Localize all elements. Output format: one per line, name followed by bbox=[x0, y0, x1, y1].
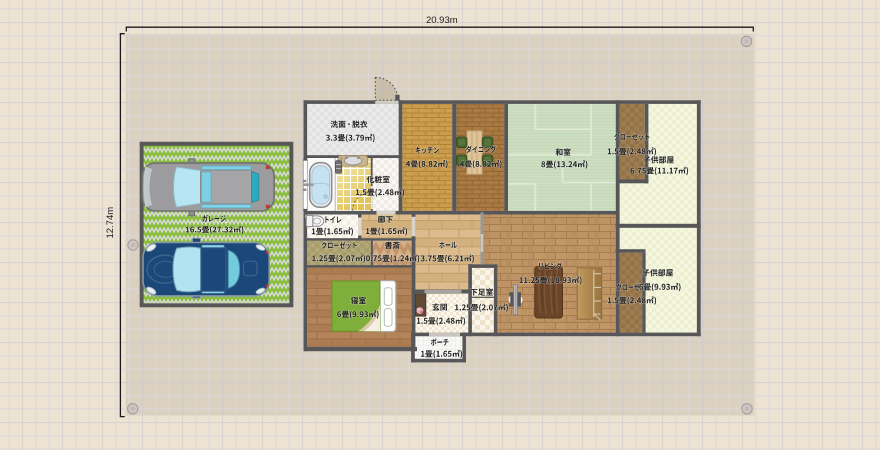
svg-text:20.93m: 20.93m bbox=[426, 15, 458, 26]
svg-text:12.74m: 12.74m bbox=[105, 207, 116, 239]
